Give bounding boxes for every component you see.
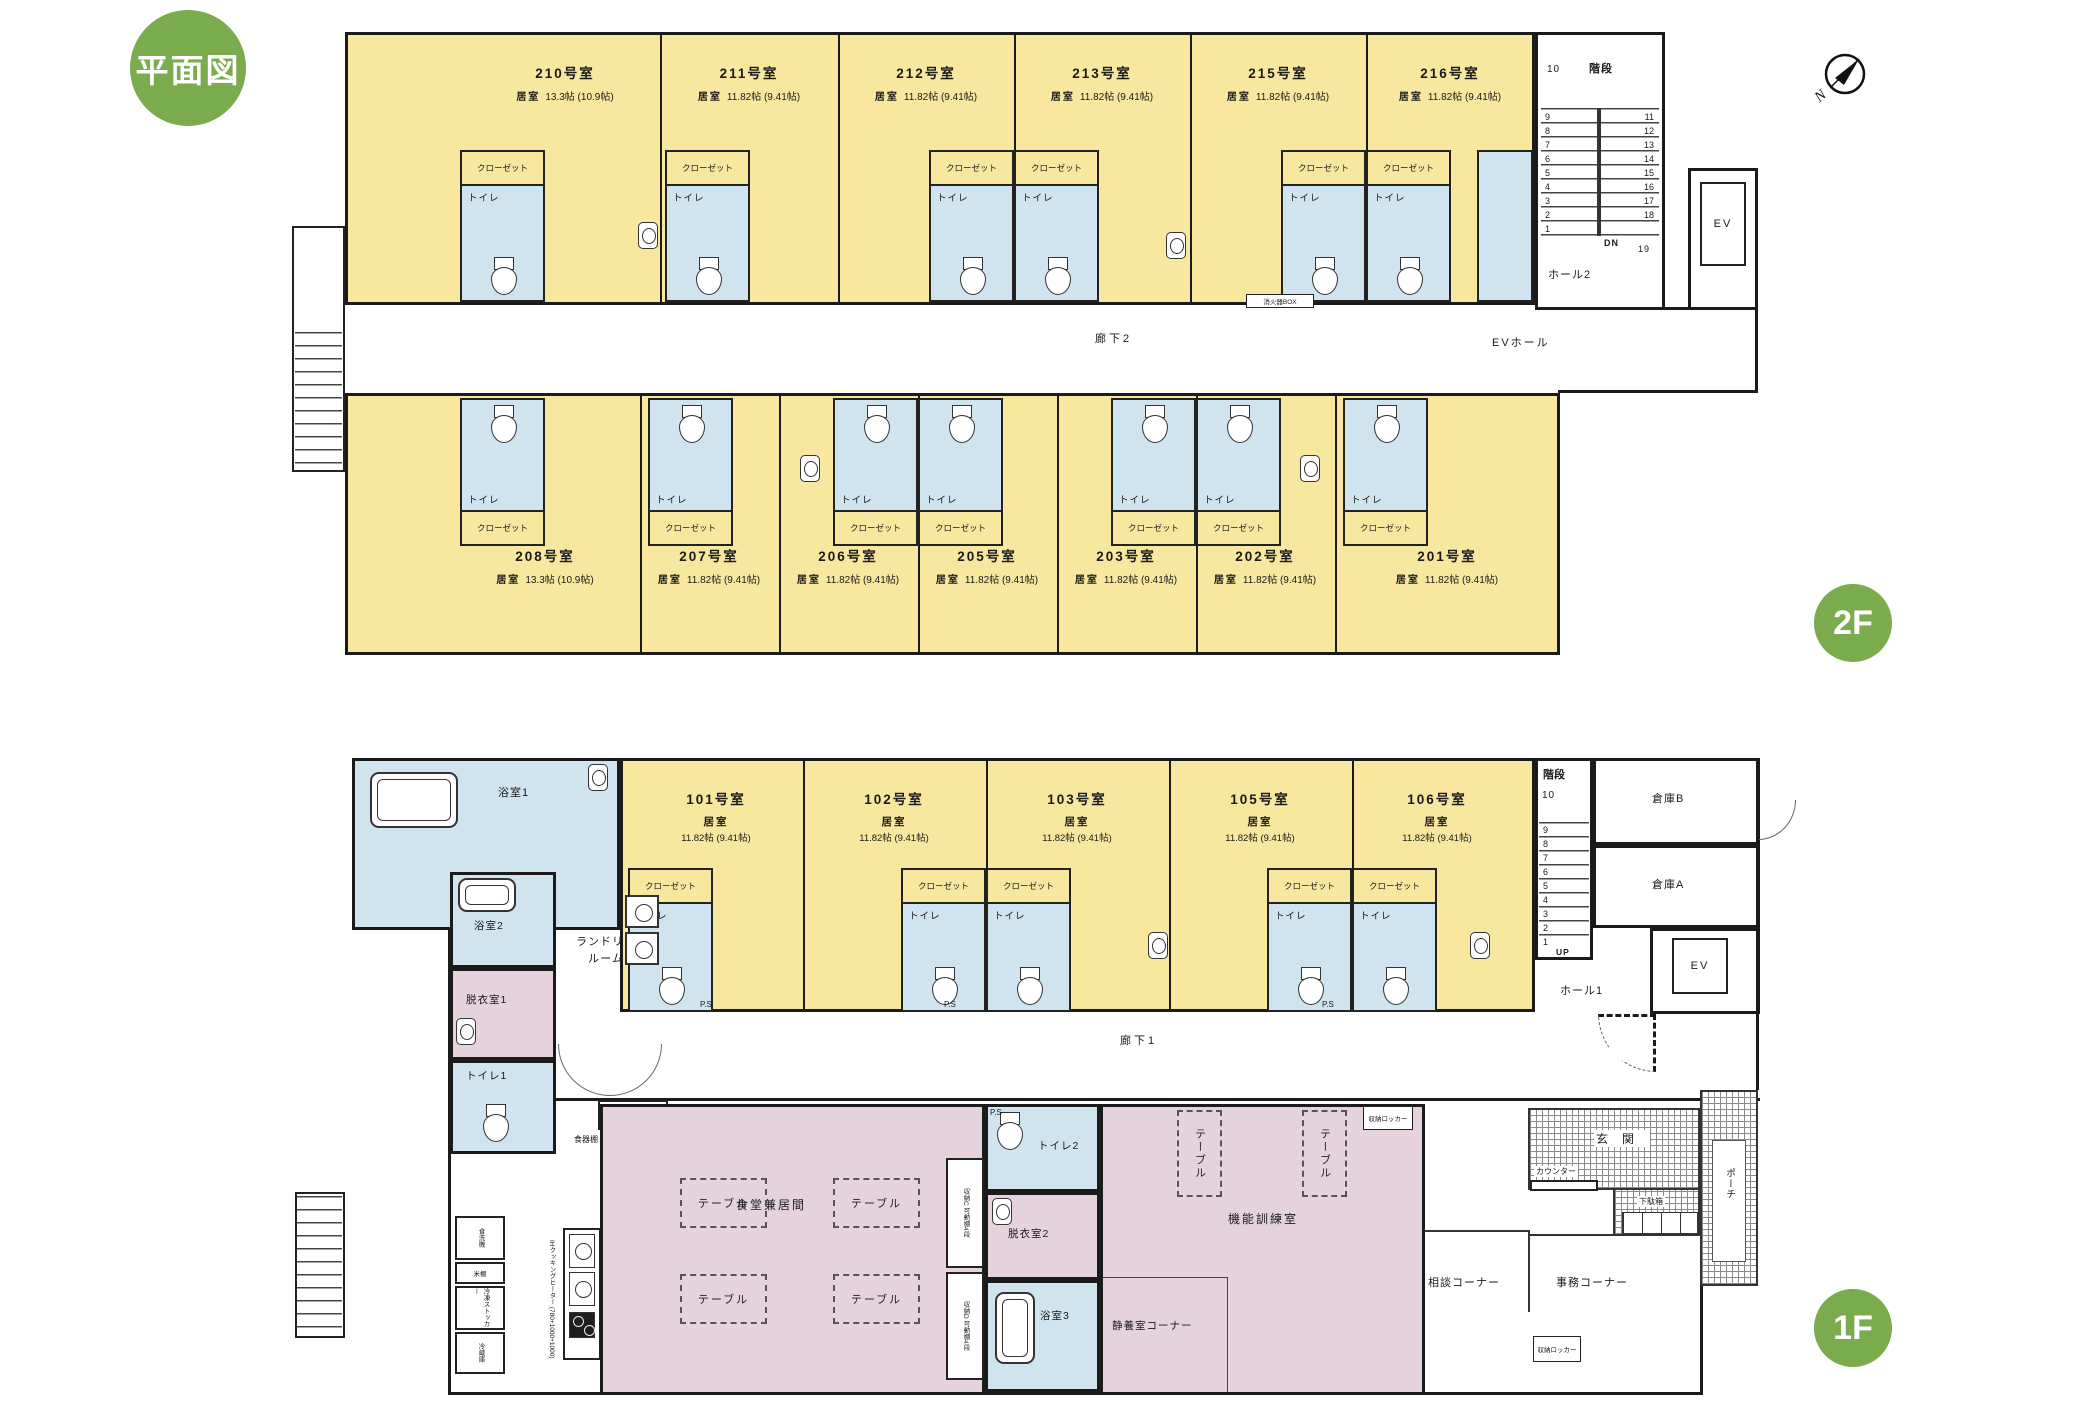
closet-label: クローゼット [1383, 162, 1434, 174]
room-area: 11.82帖 (9.41帖) [687, 575, 760, 586]
table-label: テーブル [698, 1291, 749, 1307]
rest-corner-label: 静養室コーナー [1112, 1318, 1193, 1333]
toilet-icon [948, 405, 974, 443]
washbasin-icon [800, 455, 820, 482]
closet-label: クローゼット [1213, 522, 1264, 534]
toilet-label: トイレ [1275, 908, 1307, 922]
room-size: 居室11.82帖 (9.41帖) [634, 571, 784, 586]
room-label-202: 202号室 居室11.82帖 (9.41帖) [1190, 545, 1340, 586]
room-number: 213号室 [1027, 62, 1177, 82]
room-type: 居室 [496, 575, 520, 586]
stair-numbers-right: 11 12 13 14 15 16 17 18 [1636, 110, 1654, 222]
room-number: 215号室 [1203, 62, 1353, 82]
toilet-room: トイレ [1354, 904, 1435, 1010]
wall [448, 930, 451, 1395]
wall [1558, 390, 1758, 393]
closet: クローゼット [835, 510, 916, 544]
room-size: 居室11.82帖 (9.41帖) [1375, 88, 1525, 103]
locker-box: 収納ロッカー [1363, 1106, 1413, 1130]
storage-d-box: 収納D 可動棚4段 [946, 1272, 984, 1380]
floor-plan-page: 平面図 2F 1F N 210号室 居室13.3帖 (10.9帖) 211号室 … [0, 0, 2100, 1420]
room-size: 居室11.82帖 (9.41帖) [912, 571, 1062, 586]
stair-step-19: 19 [1638, 244, 1650, 254]
toilet-label: トイレ [468, 190, 500, 204]
toilet-room: トイレ [462, 400, 543, 510]
dining-table: テーブル [680, 1274, 767, 1324]
toilet-closet-unit: クローゼットトイレ [1352, 868, 1437, 1012]
room-size: 居室11.82帖 (9.41帖) [674, 88, 824, 103]
counter-bar [1530, 1180, 1598, 1191]
room-size: 居室11.82帖 (9.41帖) [851, 88, 1001, 103]
ev-label: EV [1691, 960, 1710, 972]
closet: クローゼット [1354, 870, 1435, 904]
room-number: 201号室 [1372, 545, 1522, 565]
room-area: 11.82帖 (9.41帖) [641, 830, 791, 844]
stair-step-10: 10 [1542, 790, 1555, 801]
closet: クローゼット [462, 510, 543, 544]
room-size: 居室11.82帖 (9.41帖) [1190, 571, 1340, 586]
table-label: テーブル [698, 1195, 749, 1211]
closet-label: クローゼット [1369, 880, 1420, 892]
wall [803, 758, 805, 1012]
room-number: 202号室 [1190, 545, 1340, 565]
room-label-101: 101号室 居室 11.82帖 (9.41帖) [641, 788, 791, 844]
porch-label: ポーチ [1720, 1168, 1738, 1200]
toilet-label: トイレ [841, 492, 873, 506]
toilet-label: トイレ [468, 492, 500, 506]
toilet-room: トイレ [650, 400, 731, 510]
toilet-strip [1477, 150, 1533, 302]
wall [1663, 307, 1691, 310]
toilet-label: トイレ [909, 908, 941, 922]
door-arc [1758, 800, 1796, 840]
rice-shelf-box: 米棚 [455, 1262, 505, 1284]
room-type: 居室 [1396, 575, 1420, 586]
toilet-room: トイレ [1113, 400, 1194, 510]
room-area: 13.3帖 (10.9帖) [545, 92, 613, 103]
rice-shelf-label: 米棚 [474, 1268, 487, 1278]
toilet-icon [1311, 257, 1337, 295]
closet-label: クローゼット [1360, 522, 1411, 534]
floor-badge-1f: 1F [1814, 1289, 1892, 1367]
room-size: 居室13.3帖 (10.9帖) [470, 571, 620, 586]
room-area: 11.82帖 (9.41帖) [727, 92, 800, 103]
room-type: 居室 [875, 92, 899, 103]
toilet-closet-unit: クローゼットトイレ [1343, 398, 1428, 546]
entrance-label: 玄関 [1594, 1130, 1650, 1147]
toilet-icon [1141, 405, 1167, 443]
toilet-room1-label: トイレ1 [466, 1068, 507, 1083]
room-number: 206号室 [773, 545, 923, 565]
closet: クローゼット [667, 152, 748, 186]
wall [1756, 758, 1759, 1090]
room-area: 11.82帖 (9.41帖) [1002, 830, 1152, 844]
room-number: 216号室 [1375, 62, 1525, 82]
pipe-space-label: P.S [990, 1108, 1002, 1117]
room-number: 106号室 [1362, 788, 1512, 808]
room-size: 居室11.82帖 (9.41帖) [1051, 571, 1201, 586]
closet-label: クローゼット [477, 162, 528, 174]
room-type: 居室 [516, 92, 540, 103]
dressing-room1 [450, 968, 556, 1060]
toilet-room: トイレ [667, 186, 748, 300]
room-number: 105号室 [1185, 788, 1335, 808]
toilet-icon [490, 405, 516, 443]
floor-badge-2f: 2F [1814, 584, 1892, 662]
storage-b-label: 倉庫B [1652, 790, 1684, 806]
hall2-label: ホール2 [1548, 266, 1591, 282]
room-area: 11.82帖 (9.41帖) [1243, 575, 1316, 586]
room-area: 11.82帖 (9.41帖) [965, 575, 1038, 586]
toilet-label: トイレ [1204, 492, 1236, 506]
room-label-205: 205号室 居室11.82帖 (9.41帖) [912, 545, 1062, 586]
wall [1755, 168, 1758, 393]
room-number: 102号室 [819, 788, 969, 808]
toilet-label: トイレ [937, 190, 969, 204]
room-number: 103号室 [1002, 788, 1152, 808]
room-area: 11.82帖 (9.41帖) [1362, 830, 1512, 844]
stairs-1f-label: 階段 [1543, 766, 1565, 782]
bathroom2-label: 浴室2 [474, 918, 504, 933]
room-label-213: 213号室 居室11.82帖 (9.41帖) [1027, 62, 1177, 103]
dining-table: テーブル [680, 1178, 767, 1228]
storage-d-label: 収納D 可動棚4段 [960, 1301, 970, 1350]
room-area: 11.82帖 (9.41帖) [1428, 92, 1501, 103]
room-label-216: 216号室 居室11.82帖 (9.41帖) [1375, 62, 1525, 103]
bathtub-icon [995, 1292, 1035, 1364]
room-area: 11.82帖 (9.41帖) [904, 92, 977, 103]
stair-numbers-left: 9 8 7 6 5 4 3 2 1 [1545, 110, 1550, 236]
room-label-106: 106号室 居室 11.82帖 (9.41帖) [1362, 788, 1512, 844]
room-type: 居室 [1185, 814, 1335, 829]
room-label-207: 207号室 居室11.82帖 (9.41帖) [634, 545, 784, 586]
room-type: 居室 [1227, 92, 1251, 103]
toilet-room: トイレ [988, 904, 1069, 1010]
toilet-label: トイレ [1289, 190, 1321, 204]
closet-label: クローゼット [946, 162, 997, 174]
stair-up-label: UP [1556, 947, 1570, 957]
toilet-icon [959, 257, 985, 295]
room-number: 211号室 [674, 62, 824, 82]
extinguisher-box: 消火器BOX [1246, 294, 1314, 308]
room-type: 居室 [1051, 92, 1075, 103]
door-arc [610, 1044, 662, 1096]
toilet-closet-unit: クローゼットトイレ [1014, 150, 1099, 302]
room-label-210: 210号室 居室13.3帖 (10.9帖) [490, 62, 640, 103]
washbasin-icon [638, 222, 658, 249]
toilet-closet-unit: クローゼットトイレ [918, 398, 1003, 546]
room-type: 居室 [1214, 575, 1238, 586]
locker-box: 収納ロッカー [1533, 1336, 1581, 1362]
floor-badge-1f-label: 1F [1833, 1309, 1873, 1348]
toilet-icon [1396, 257, 1422, 295]
toilet-icon [678, 405, 704, 443]
washing-machine-icon [625, 895, 659, 928]
room-number: 203号室 [1051, 545, 1201, 565]
closet: クローゼット [988, 870, 1069, 904]
washing-machine-icon [625, 932, 659, 965]
washbasin-icon [1148, 932, 1168, 959]
fridge-box: 冷蔵庫 [455, 1332, 505, 1374]
entrance-hall [1528, 1108, 1700, 1190]
toilet-closet-unit: クローゼットトイレ [1196, 398, 1281, 546]
room-area: 11.82帖 (9.41帖) [1080, 92, 1153, 103]
porch-step [1712, 1140, 1746, 1262]
closet: クローゼット [1345, 510, 1426, 544]
closet-label: クローゼット [1031, 162, 1082, 174]
sink-icon [569, 1234, 595, 1268]
external-stair-treads [295, 332, 342, 470]
closet-label: クローゼット [918, 880, 969, 892]
toilet-label: トイレ [673, 190, 705, 204]
toilet-closet-unit: クローゼットトイレ [1267, 868, 1352, 1012]
closet: クローゼット [1269, 870, 1350, 904]
closet: クローゼット [931, 152, 1012, 186]
washbasin-icon [1166, 232, 1186, 259]
room-type: 居室 [1362, 814, 1512, 829]
elevator-car-1f: EV [1672, 938, 1728, 994]
toilet-label: トイレ [656, 492, 688, 506]
room-type: 居室 [1075, 575, 1099, 586]
storage-c-box: 収納C 可動棚4段 [946, 1158, 984, 1268]
toilet-label: トイレ [1374, 190, 1406, 204]
room-type: 居室 [1002, 814, 1152, 829]
toilet-closet-unit: クローゼットトイレ [1111, 398, 1196, 546]
toilet-icon [490, 257, 516, 295]
wall [1335, 393, 1337, 655]
door-arc [1598, 1014, 1656, 1072]
kitchen-counter [563, 1228, 601, 1360]
ih-heater-label: IHクッキングヒーター (780+1000+1000) [546, 1240, 556, 1380]
shoe-box-label: 下駄箱 [1637, 1196, 1665, 1207]
toilet-icon [695, 257, 721, 295]
room-type: 居室 [936, 575, 960, 586]
table-label: テーブル [1192, 1128, 1208, 1180]
room-label-105: 105号室 居室 11.82帖 (9.41帖) [1185, 788, 1335, 844]
room-number: 207号室 [634, 545, 784, 565]
closet-label: クローゼット [645, 880, 696, 892]
elevator-car-2f: EV [1700, 182, 1746, 266]
toilet-room: トイレ [903, 904, 984, 1010]
toilet-icon [658, 967, 684, 1005]
closet-label: クローゼット [1003, 880, 1054, 892]
bathroom3-label: 浴室3 [1040, 1308, 1070, 1323]
room-number: 210号室 [490, 62, 640, 82]
toilet-icon [1044, 257, 1070, 295]
room-size: 居室11.82帖 (9.41帖) [1372, 571, 1522, 586]
fridge-label: 冷蔵庫 [475, 1343, 485, 1363]
toilet-icon [996, 1112, 1022, 1150]
toilet-label: トイレ [1119, 492, 1151, 506]
cupboard-label: 食器棚 [574, 1134, 598, 1145]
room-size: 居室13.3帖 (10.9帖) [490, 88, 640, 103]
ih-cooker-icon [569, 1312, 595, 1338]
washbasin-icon [992, 1198, 1012, 1225]
stairs-2f-label: 階段 [1589, 60, 1613, 76]
bathtub-icon [370, 772, 458, 828]
wall [640, 393, 642, 655]
toilet-icon [482, 1104, 508, 1142]
closet: クローゼット [1198, 510, 1279, 544]
hall1-label: ホール1 [1560, 982, 1603, 998]
toilet-closet-unit: クローゼットトイレ [901, 868, 986, 1012]
storage-c-label: 収納C 可動棚4段 [960, 1188, 970, 1237]
toilet-room: トイレ [462, 186, 543, 300]
room-area: 13.3帖 (10.9帖) [525, 575, 593, 586]
closet: クローゼット [1113, 510, 1194, 544]
rest-corner [1103, 1277, 1228, 1392]
room-label-208: 208号室 居室13.3帖 (10.9帖) [470, 545, 620, 586]
closet: クローゼット [462, 152, 543, 186]
room-number: 205号室 [912, 545, 1062, 565]
dressing-room2-label: 脱衣室2 [1008, 1226, 1049, 1241]
washbasin-icon [456, 1018, 476, 1045]
room-size: 居室11.82帖 (9.41帖) [1203, 88, 1353, 103]
room-number: 208号室 [470, 545, 620, 565]
room-label-103: 103号室 居室 11.82帖 (9.41帖) [1002, 788, 1152, 844]
washbasin-icon [1470, 932, 1490, 959]
corridor1-label: 廊下1 [1120, 1032, 1157, 1048]
toilet-icon [1373, 405, 1399, 443]
room-type: 居室 [797, 575, 821, 586]
dining-table: テーブル [833, 1178, 920, 1228]
room-label-211: 211号室 居室11.82帖 (9.41帖) [674, 62, 824, 103]
closet: クローゼット [1283, 152, 1364, 186]
room-area: 11.82帖 (9.41帖) [1425, 575, 1498, 586]
locker-label: 収納ロッカー [1369, 1113, 1408, 1123]
closet: クローゼット [1016, 152, 1097, 186]
room-number: 101号室 [641, 788, 791, 808]
freezer-label: 冷凍ストッカー [470, 1288, 490, 1328]
toilet-closet-unit: クローゼットトイレ [833, 398, 918, 546]
wall [1169, 758, 1171, 1012]
training-room-label: 機能訓練室 [1228, 1210, 1298, 1227]
toilet-room: トイレ [1198, 400, 1279, 510]
wall [660, 32, 662, 305]
stair-dn-label: DN [1604, 238, 1619, 248]
toilet-label: トイレ [926, 492, 958, 506]
room-label-203: 203号室 居室11.82帖 (9.41帖) [1051, 545, 1201, 586]
toilet-label: トイレ [1360, 908, 1392, 922]
pipe-space-label: P.S [944, 1000, 956, 1009]
closet: クローゼット [920, 510, 1001, 544]
toilet-room2-label: トイレ2 [1038, 1138, 1079, 1153]
room-type: 居室 [698, 92, 722, 103]
toilet-label: トイレ [1022, 190, 1054, 204]
dining-living-room [600, 1104, 985, 1395]
stair-step-10: 10 [1547, 64, 1560, 75]
wall [1425, 1230, 1530, 1232]
toilet-room: トイレ [1016, 186, 1097, 300]
toilet-closet-unit: クローゼットトイレ [665, 150, 750, 302]
closet-label: クローゼット [1284, 880, 1335, 892]
toilet-icon [863, 405, 889, 443]
room-size: 居室11.82帖 (9.41帖) [1027, 88, 1177, 103]
wall [1528, 1230, 1530, 1312]
toilet-label: トイレ [1351, 492, 1383, 506]
toilet-icon [1382, 967, 1408, 1005]
toilet-room: トイレ [920, 400, 1001, 510]
room-size: 居室11.82帖 (9.41帖) [773, 571, 923, 586]
wall [1190, 32, 1192, 305]
room-type: 居室 [819, 814, 969, 829]
room-area: 11.82帖 (9.41帖) [1104, 575, 1177, 586]
wall [779, 393, 781, 655]
toilet-closet-unit: クローゼットトイレ [460, 398, 545, 546]
storage-a-label: 倉庫A [1652, 876, 1684, 892]
freezer-box: 冷凍ストッカー [455, 1286, 505, 1330]
closet-label: クローゼット [1298, 162, 1349, 174]
ev-label: EV [1714, 218, 1733, 230]
toilet-room: トイレ [835, 400, 916, 510]
closet-label: クローゼット [935, 522, 986, 534]
locker-label: 収納ロッカー [1538, 1344, 1577, 1354]
dining-table: テーブル [833, 1274, 920, 1324]
pipe-space-label: P.S [700, 1000, 712, 1009]
floor-badge-2f-label: 2F [1833, 604, 1873, 643]
training-table: テーブル [1177, 1110, 1222, 1197]
room-type: 居室 [658, 575, 682, 586]
toilet-icon [1297, 967, 1323, 1005]
room-area: 11.82帖 (9.41帖) [1185, 830, 1335, 844]
wall [838, 32, 840, 305]
room-type: 居室 [1399, 92, 1423, 103]
counter-label: カウンター [1534, 1166, 1578, 1177]
closet: クローゼット [903, 870, 984, 904]
pipe-space-label: P.S [1322, 1000, 1334, 1009]
closet: クローゼット [650, 510, 731, 544]
dishwasher-box: 食洗機 [455, 1216, 505, 1260]
title-badge: 平面図 [130, 10, 246, 126]
toilet-closet-unit: クローゼットトイレ [1366, 150, 1451, 302]
toilet-room: トイレ [931, 186, 1012, 300]
toilet-closet-unit: クローゼットトイレ [1281, 150, 1366, 302]
room-number: 212号室 [851, 62, 1001, 82]
toilet-room: トイレ [1269, 904, 1350, 1010]
toilet-closet-unit: クローゼットトイレ [986, 868, 1071, 1012]
bathroom1-label: 浴室1 [498, 784, 529, 800]
room-label-201: 201号室 居室11.82帖 (9.41帖) [1372, 545, 1522, 586]
door-arc [558, 1044, 610, 1096]
table-label: テーブル [851, 1291, 902, 1307]
washbasin-icon [1300, 455, 1320, 482]
extinguisher-label: 消火器BOX [1263, 296, 1296, 306]
closet-label: クローゼット [1128, 522, 1179, 534]
toilet-room: トイレ [1345, 400, 1426, 510]
stair-rail [1597, 108, 1601, 236]
toilet-room: トイレ [1283, 186, 1364, 300]
dressing-room1-label: 脱衣室1 [466, 992, 507, 1007]
title-badge-label: 平面図 [136, 44, 241, 92]
wall [1057, 393, 1059, 655]
room-label-212: 212号室 居室11.82帖 (9.41帖) [851, 62, 1001, 103]
table-label: テーブル [1317, 1128, 1333, 1180]
room-label-102: 102号室 居室 11.82帖 (9.41帖) [819, 788, 969, 844]
external-stair-treads [297, 1196, 342, 1334]
corridor2-label: 廊下2 [1095, 330, 1132, 346]
toilet-closet-unit: クローゼットトイレ [648, 398, 733, 546]
room-label-215: 215号室 居室11.82帖 (9.41帖) [1203, 62, 1353, 103]
closet-label: クローゼット [850, 522, 901, 534]
ev-hall-label: EVホール [1492, 334, 1550, 350]
closet-label: クローゼット [665, 522, 716, 534]
closet-label: クローゼット [682, 162, 733, 174]
closet: クローゼット [1368, 152, 1449, 186]
toilet-icon [1226, 405, 1252, 443]
room-area: 11.82帖 (9.41帖) [1256, 92, 1329, 103]
training-table: テーブル [1302, 1110, 1347, 1197]
room-area: 11.82帖 (9.41帖) [819, 830, 969, 844]
